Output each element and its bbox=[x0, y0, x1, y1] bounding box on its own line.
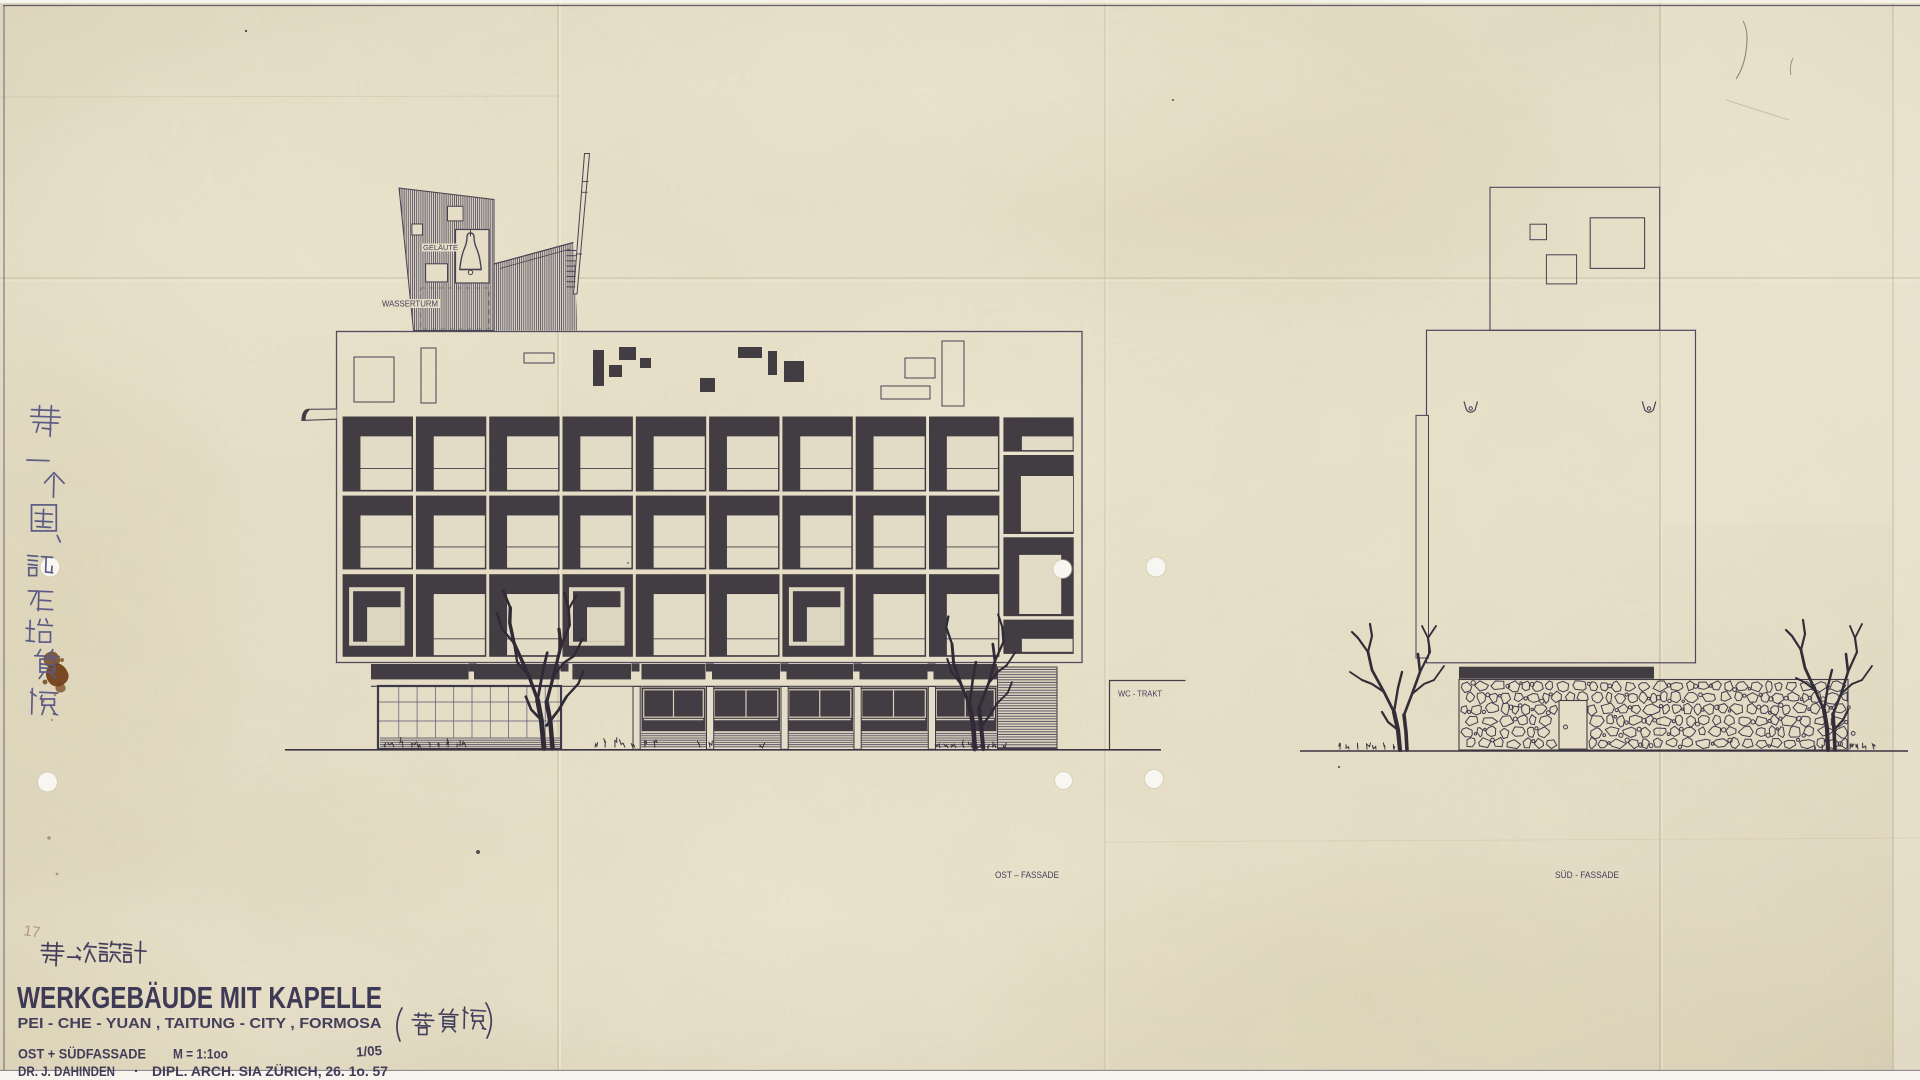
svg-text:WERKGEBÄUDE MIT KAPELLE: WERKGEBÄUDE MIT KAPELLE bbox=[17, 980, 382, 1015]
svg-text:1/05: 1/05 bbox=[356, 1043, 384, 1060]
svg-text:OST + SÜDFASSADE: OST + SÜDFASSADE bbox=[18, 1047, 146, 1062]
svg-text:DIPL. ARCH. SIA ZÜRICH, 26. 1: DIPL. ARCH. SIA ZÜRICH, 26. 1o. 57 bbox=[152, 1064, 388, 1079]
svg-text:PEI - CHE - YUAN , TAITU: PEI - CHE - YUAN , TAITUNG - CITY , FORM… bbox=[18, 1016, 382, 1032]
svg-text:DR. J. DAHINDEN: DR. J. DAHINDEN bbox=[18, 1064, 115, 1079]
svg-text:OST – FASSADE: OST – FASSADE bbox=[995, 869, 1059, 880]
svg-text:SÜD - FASSADE: SÜD - FASSADE bbox=[1555, 869, 1619, 880]
svg-text:17: 17 bbox=[22, 922, 41, 941]
svg-text:GELÄUTE: GELÄUTE bbox=[423, 243, 458, 252]
svg-text:M = 1:1oo: M = 1:1oo bbox=[173, 1047, 228, 1062]
svg-text:WASSERTURM: WASSERTURM bbox=[382, 300, 438, 309]
svg-text:WC - TRAKT: WC - TRAKT bbox=[1118, 690, 1162, 699]
